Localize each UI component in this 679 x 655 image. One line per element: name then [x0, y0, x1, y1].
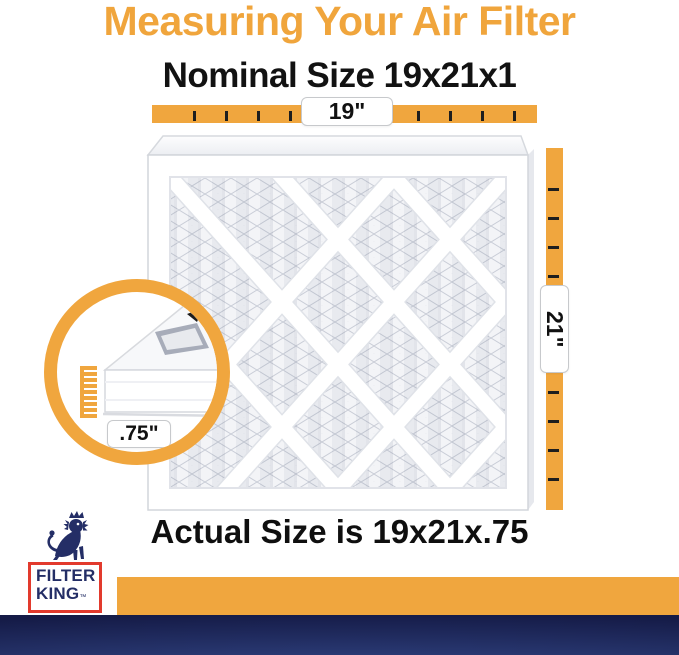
- infographic-canvas: Measuring Your Air Filter Nominal Size 1…: [0, 0, 679, 655]
- width-value: 19": [329, 98, 366, 125]
- edge-shadow-line: [103, 414, 217, 416]
- filter-side-edge: [528, 149, 534, 510]
- filter-king-logo: FILTER KING™: [20, 509, 110, 613]
- edge-thickness-face: [105, 370, 217, 412]
- height-value: 21": [541, 311, 568, 348]
- logo-line1: FILTER: [36, 567, 94, 585]
- page-title: Measuring Your Air Filter: [0, 0, 679, 45]
- trademark-symbol: ™: [79, 594, 86, 601]
- lion-crown-icon: [33, 509, 97, 561]
- orange-band: [117, 577, 679, 615]
- blue-band: [0, 615, 679, 655]
- filter-top-face: [148, 136, 528, 155]
- depth-mini-ruler: [80, 366, 97, 418]
- width-measurement-label: 19": [301, 97, 393, 126]
- magnifier-circle: .75": [44, 279, 230, 465]
- height-measurement-label: 21": [540, 285, 569, 373]
- logo-line2: KING™: [36, 585, 94, 607]
- nominal-size-label: Nominal Size 19x21x1: [0, 56, 679, 96]
- logo-wordmark: FILTER KING™: [28, 562, 102, 613]
- depth-value: .75": [119, 422, 158, 446]
- depth-measurement-label: .75": [107, 420, 171, 448]
